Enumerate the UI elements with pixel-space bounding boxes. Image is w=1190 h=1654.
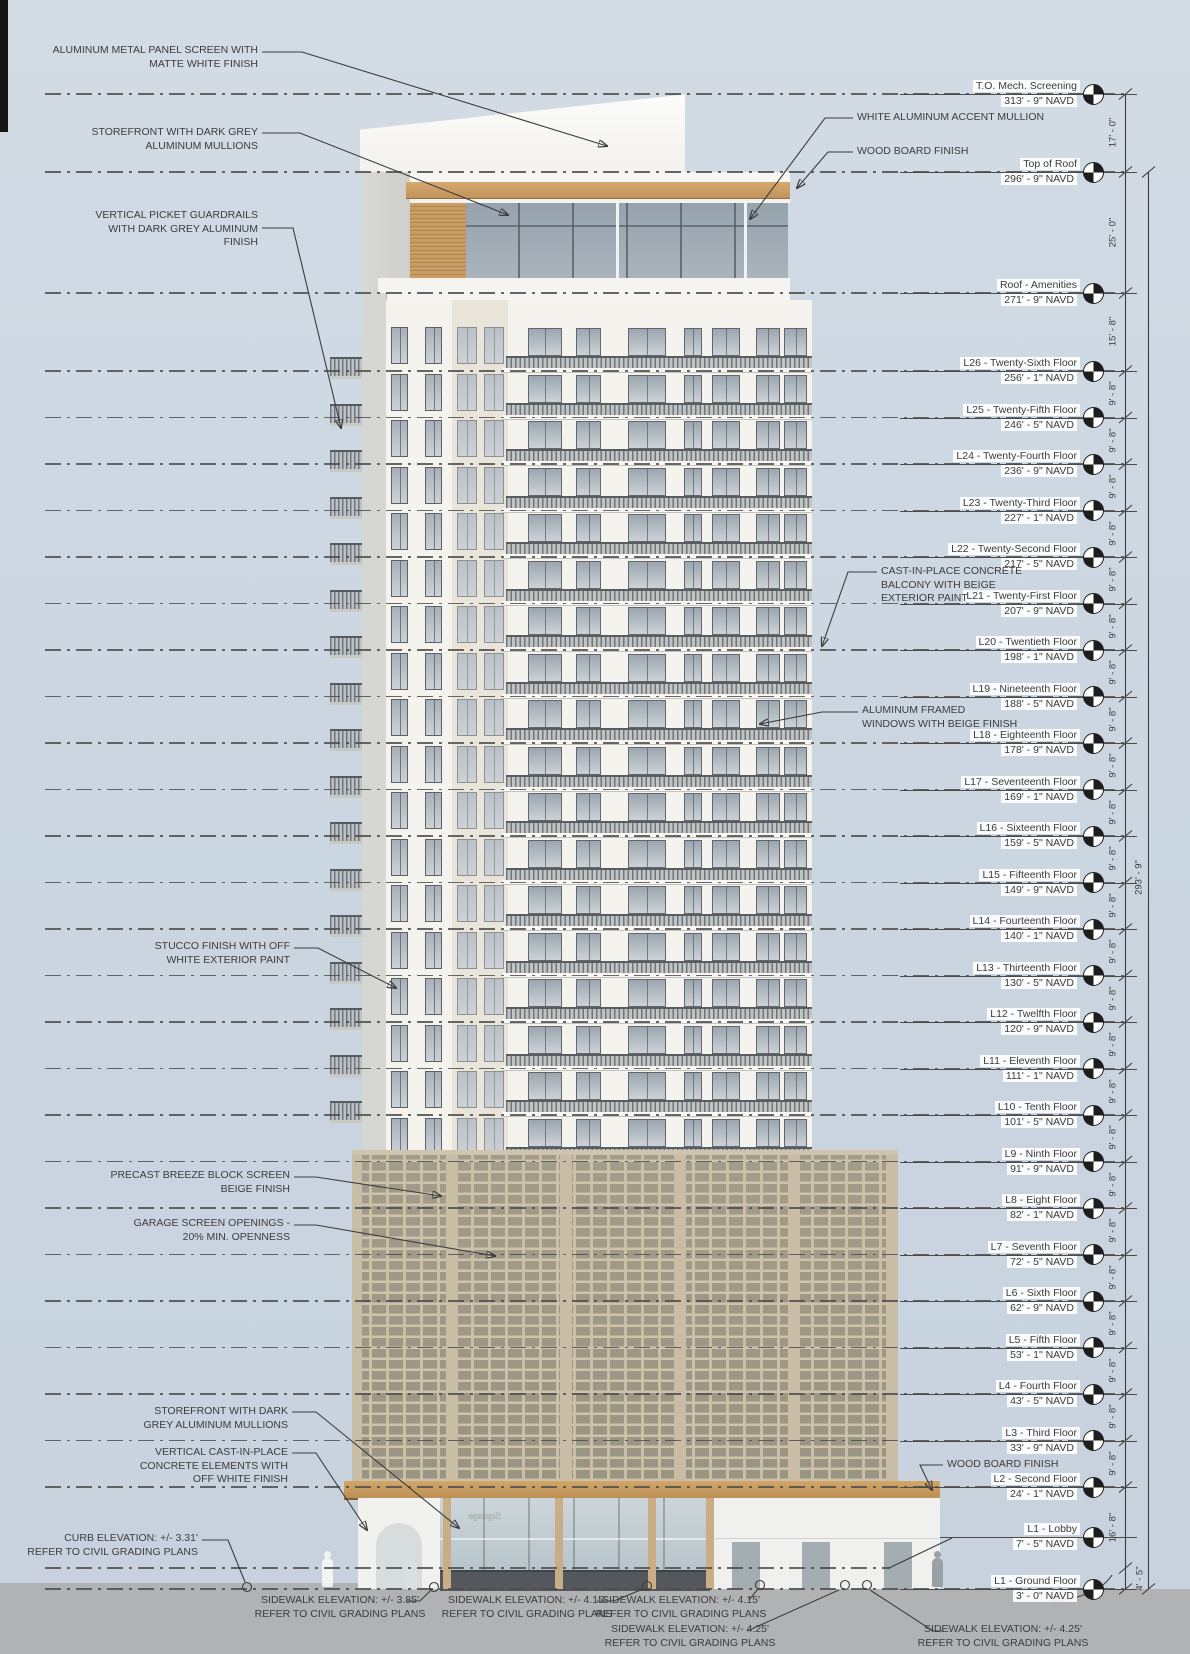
tower-window — [784, 421, 807, 449]
tower-window — [391, 467, 408, 504]
wood-fascia — [406, 182, 790, 199]
tower-window — [628, 933, 666, 961]
tower-window — [528, 654, 562, 682]
window-mullion — [434, 840, 435, 875]
west-balcony — [330, 1101, 362, 1123]
window-mullion — [693, 608, 694, 634]
tower-window — [684, 886, 702, 914]
window-mullion — [545, 422, 546, 448]
window-mullion — [434, 1072, 435, 1107]
level-elevation: 101' - 5" NAVD — [1001, 1116, 1077, 1128]
datum-marker — [1083, 872, 1104, 893]
tower-window — [784, 979, 807, 1007]
window-mullion — [467, 747, 468, 782]
window-mullion — [726, 562, 727, 588]
level-elevation: 149' - 9" NAVD — [1001, 884, 1077, 896]
window-mullion — [768, 748, 769, 774]
level-name: L1 - Lobby — [1024, 1523, 1080, 1535]
level-elevation: 91' - 9" NAVD — [1007, 1163, 1077, 1175]
callout-line: STUCCO FINISH WITH OFF — [0, 940, 290, 954]
window-mullion — [693, 841, 694, 867]
storefront-glass: Signage — [440, 1498, 710, 1589]
podium-top-band — [352, 1150, 898, 1155]
callout-line: WOOD BOARD FINISH — [947, 1458, 1190, 1472]
tower-window — [784, 1026, 807, 1054]
mechanical-screen — [360, 92, 685, 172]
level-name: L17 - Seventeenth Floor — [961, 776, 1080, 788]
tower-window — [484, 513, 504, 550]
tower-window — [391, 653, 408, 690]
window-mullion — [467, 886, 468, 921]
tower-window — [784, 747, 807, 775]
window-mullion — [647, 608, 648, 634]
tower-window — [391, 792, 408, 829]
level-name: L4 - Fourth Floor — [996, 1380, 1080, 1392]
window-mullion — [400, 375, 401, 410]
tower-window — [684, 561, 702, 589]
tower-window — [484, 560, 504, 597]
tower-window — [712, 654, 740, 682]
callout-line: STOREFRONT WITH DARK — [0, 1405, 288, 1419]
tower-window — [628, 747, 666, 775]
callout-accent-mullion: WHITE ALUMINUM ACCENT MULLION — [857, 111, 1157, 125]
callout-line: REFER TO CIVIL GRADING PLANS — [0, 1546, 198, 1560]
tower-window — [628, 1072, 666, 1100]
window-mullion — [400, 933, 401, 968]
callout-line: GARAGE SCREEN OPENINGS - — [0, 1217, 290, 1231]
tower-window — [784, 886, 807, 914]
tower-window — [576, 840, 601, 868]
tower-window — [457, 653, 477, 690]
elevation-drawing: Signage — [0, 0, 1190, 1654]
callout-line: SIDEWALK ELEVATION: +/- 4.25' — [590, 1623, 790, 1637]
tower-window — [391, 374, 408, 411]
tower-window — [784, 840, 807, 868]
tower-window — [425, 792, 442, 829]
window-mullion — [400, 1026, 401, 1061]
window-mullion — [693, 376, 694, 402]
window-mullion — [434, 654, 435, 689]
window-mullion — [434, 1026, 435, 1061]
tower-window — [684, 933, 702, 961]
window-mullion — [494, 700, 495, 735]
tower-window — [457, 839, 477, 876]
window-mullion — [400, 468, 401, 503]
callout-storefront-mullions-bottom: STOREFRONT WITH DARKGREY ALUMINUM MULLIO… — [0, 1405, 288, 1432]
tower-window — [628, 979, 666, 1007]
level-elevation: 120' - 9" NAVD — [1001, 1023, 1077, 1035]
tower-window — [425, 1025, 442, 1062]
tower-window — [425, 420, 442, 457]
tower-window — [756, 561, 780, 589]
level-elevation: 159' - 5" NAVD — [1001, 837, 1077, 849]
door-opening — [732, 1542, 760, 1589]
tower-window — [528, 1072, 562, 1100]
leader-wood-board-top — [797, 152, 853, 188]
window-mullion — [467, 840, 468, 875]
window-mullion — [726, 887, 727, 913]
window-mullion — [693, 329, 694, 355]
level-elevation: 271' - 9" NAVD — [1001, 294, 1077, 306]
window-mullion — [589, 887, 590, 913]
window-mullion — [400, 561, 401, 596]
dim-tick — [1142, 167, 1155, 178]
glass-transom — [440, 1538, 710, 1540]
tower-window — [528, 933, 562, 961]
window-mullion — [434, 979, 435, 1014]
tower-window — [628, 514, 666, 542]
window-mullion — [494, 654, 495, 689]
tower-window — [391, 1118, 408, 1151]
window-mullion — [726, 1120, 727, 1146]
window-mullion — [494, 793, 495, 828]
dim-tick — [1119, 1563, 1132, 1574]
level-name: Roof - Amenities — [997, 279, 1080, 291]
callout-line: PRECAST BREEZE BLOCK SCREEN — [0, 1169, 290, 1183]
datum-marker — [1083, 361, 1104, 382]
datum-marker — [1083, 733, 1104, 754]
tower-window — [684, 468, 702, 496]
tower-window — [391, 606, 408, 643]
podium-pier — [352, 1150, 362, 1481]
window-mullion — [434, 328, 435, 363]
window-mullion — [693, 701, 694, 727]
window-mullion — [589, 376, 590, 402]
tower-window — [457, 1071, 477, 1108]
level-elevation: 227' - 1" NAVD — [1001, 512, 1077, 524]
tower-window — [784, 700, 807, 728]
dim-text: 4' - 5" — [1135, 1536, 1146, 1620]
level-elevation: 256' - 1" NAVD — [1001, 372, 1077, 384]
level-elevation: 53' - 1" NAVD — [1007, 1349, 1077, 1361]
tower-window — [756, 328, 780, 356]
wood-side-panel — [410, 203, 466, 278]
callout-sidewalk-385: SIDEWALK ELEVATION: +/- 3.85'REFER TO CI… — [240, 1594, 440, 1621]
door-opening — [802, 1542, 830, 1589]
tower-window — [576, 979, 601, 1007]
window-mullion — [768, 980, 769, 1006]
tower-window — [457, 932, 477, 969]
window-mullion — [693, 887, 694, 913]
window-mullion — [494, 933, 495, 968]
window-mullion — [768, 608, 769, 634]
window-mullion — [434, 886, 435, 921]
datum-marker — [1083, 162, 1104, 183]
callout-sidewalk-425-a: SIDEWALK ELEVATION: +/- 4.25'REFER TO CI… — [590, 1623, 790, 1650]
window-mullion — [796, 655, 797, 681]
window-mullion — [545, 980, 546, 1006]
west-balcony — [330, 590, 362, 612]
window-mullion — [768, 1120, 769, 1146]
tower-window — [484, 374, 504, 411]
window-mullion — [589, 469, 590, 495]
tower-window — [457, 1025, 477, 1062]
window-mullion — [545, 1073, 546, 1099]
tower-window — [712, 607, 740, 635]
datum-marker — [1083, 919, 1104, 940]
west-balcony — [330, 962, 362, 984]
window-mullion — [647, 980, 648, 1006]
window-mullion — [768, 887, 769, 913]
west-balcony — [330, 636, 362, 658]
level-elevation: 296' - 9" NAVD — [1001, 173, 1077, 185]
tower-window — [391, 1025, 408, 1062]
tower-window — [425, 606, 442, 643]
tower-window — [712, 468, 740, 496]
window-mullion — [647, 748, 648, 774]
tower-window — [756, 700, 780, 728]
datum-marker — [1083, 965, 1104, 986]
window-mullion — [545, 934, 546, 960]
tower-window — [756, 1072, 780, 1100]
window-mullion — [589, 422, 590, 448]
window-mullion — [796, 422, 797, 448]
dim-text: 17' - 0" — [1108, 91, 1119, 175]
window-mullion — [589, 794, 590, 820]
window-mullion — [545, 794, 546, 820]
window-mullion — [647, 1073, 648, 1099]
tower-window — [712, 561, 740, 589]
callout-wood-board-top: WOOD BOARD FINISH — [857, 145, 1157, 159]
tower-window — [576, 328, 601, 356]
ground-floor: Signage — [358, 1498, 940, 1589]
window-mullion — [467, 328, 468, 363]
window-mullion — [494, 1026, 495, 1061]
datum-marker — [1083, 1198, 1104, 1219]
level-elevation: 178' - 9" NAVD — [1001, 744, 1077, 756]
level-elevation: 33' - 9" NAVD — [1007, 1442, 1077, 1454]
tower-window — [425, 1071, 442, 1108]
window-mullion — [726, 469, 727, 495]
callout-line: GREY ALUMINUM MULLIONS — [0, 1419, 288, 1433]
window-mullion — [400, 514, 401, 549]
window-mullion — [589, 748, 590, 774]
tower-window — [484, 1025, 504, 1062]
window-mullion — [467, 979, 468, 1014]
window-mullion — [726, 515, 727, 541]
window-mullion — [796, 887, 797, 913]
podium-pier — [446, 1150, 458, 1481]
window-mullion — [768, 422, 769, 448]
tower-window — [628, 793, 666, 821]
window-mullion — [400, 654, 401, 689]
window-mullion — [545, 841, 546, 867]
window-mullion — [647, 1120, 648, 1146]
tower-window — [484, 792, 504, 829]
tower-window — [457, 978, 477, 1015]
tower-window — [528, 747, 562, 775]
ground-column — [555, 1498, 563, 1589]
window-mullion — [434, 375, 435, 410]
window-mullion — [589, 1120, 590, 1146]
tower-window — [628, 700, 666, 728]
level-name: L9 - Ninth Floor — [1002, 1148, 1080, 1160]
callout-line: WHITE ALUMINUM ACCENT MULLION — [857, 111, 1157, 125]
callout-storefront-mullions-top: STOREFRONT WITH DARK GREYALUMINUM MULLIO… — [0, 126, 258, 153]
callout-line: WOOD BOARD FINISH — [857, 145, 1157, 159]
window-mullion — [494, 328, 495, 363]
tower-window — [425, 932, 442, 969]
tower-window — [425, 560, 442, 597]
window-mullion — [693, 748, 694, 774]
level-name: L1 - Ground Floor — [991, 1575, 1080, 1587]
tower-window — [712, 793, 740, 821]
podium-pier — [674, 1150, 686, 1481]
tower-window — [784, 514, 807, 542]
window-mullion — [467, 1119, 468, 1151]
level-elevation: 3' - 0" NAVD — [1013, 1590, 1077, 1602]
callout-concrete-balcony: CAST-IN-PLACE CONCRETEBALCONY WITH BEIGE… — [881, 565, 1181, 606]
tower-window — [425, 885, 442, 922]
level-elevation: 130' - 5" NAVD — [1001, 977, 1077, 989]
tower-window — [628, 607, 666, 635]
tower-window — [756, 933, 780, 961]
level-elevation: 111' - 1" NAVD — [1003, 1070, 1077, 1082]
tower-window — [457, 327, 477, 364]
tower-window — [712, 886, 740, 914]
tower-window — [756, 654, 780, 682]
ground-column — [706, 1498, 714, 1589]
level-elevation: 7' - 5" NAVD — [1013, 1538, 1077, 1550]
tower-window — [391, 1071, 408, 1108]
glass-signage-text: Signage — [468, 1510, 501, 1524]
tower-window — [528, 840, 562, 868]
tower-window — [391, 839, 408, 876]
window-mullion — [693, 469, 694, 495]
window-mullion — [545, 376, 546, 402]
window-mullion — [494, 375, 495, 410]
window-mullion — [589, 1027, 590, 1053]
callout-line: WITH DARK GREY ALUMINUM — [0, 223, 258, 237]
tower-window — [391, 513, 408, 550]
window-mullion — [768, 329, 769, 355]
dim-text: 16' - 8" — [1108, 1485, 1119, 1569]
lobby-arch-wall — [358, 1498, 440, 1589]
tower-window — [684, 747, 702, 775]
callout-line: REFER TO CIVIL GRADING PLANS — [903, 1637, 1103, 1651]
white-accent-mullion — [616, 203, 619, 278]
window-mullion — [726, 1027, 727, 1053]
tower-window — [784, 654, 807, 682]
tower-window — [484, 746, 504, 783]
tower-window — [756, 375, 780, 403]
tower-window — [425, 746, 442, 783]
tower-window — [484, 1118, 504, 1151]
datum-marker — [1083, 1477, 1104, 1498]
amenity-parapet-top — [410, 172, 790, 182]
roof-amenities-parapet — [378, 278, 790, 300]
tower-window — [576, 1072, 601, 1100]
window-mullion — [400, 747, 401, 782]
tower-window — [484, 1071, 504, 1108]
tower-window — [784, 1072, 807, 1100]
tower-window — [457, 792, 477, 829]
west-balcony — [330, 1008, 362, 1030]
tower-window — [576, 654, 601, 682]
window-mullion — [434, 514, 435, 549]
window-mullion — [796, 1120, 797, 1146]
level-name: L8 - Eight Floor — [1002, 1194, 1080, 1206]
datum-marker — [1083, 454, 1104, 475]
window-mullion — [494, 886, 495, 921]
tower-window — [712, 1072, 740, 1100]
window-mullion — [693, 655, 694, 681]
callout-line: WHITE EXTERIOR PAINT — [0, 954, 290, 968]
window-mullion — [494, 468, 495, 503]
window-mullion — [647, 841, 648, 867]
window-mullion — [589, 329, 590, 355]
tower-window — [628, 468, 666, 496]
tower-window — [425, 978, 442, 1015]
level-name: L10 - Tenth Floor — [995, 1101, 1080, 1113]
tower-window — [756, 514, 780, 542]
tower-window — [576, 1119, 601, 1147]
window-mullion — [647, 469, 648, 495]
window-mullion — [589, 515, 590, 541]
window-mullion — [796, 794, 797, 820]
tower-window — [484, 327, 504, 364]
window-mullion — [647, 329, 648, 355]
callout-line: REFER TO CIVIL GRADING PLANS — [590, 1637, 790, 1651]
window-mullion — [768, 1027, 769, 1053]
window-mullion — [467, 933, 468, 968]
callout-line: WINDOWS WITH BEIGE FINISH — [862, 718, 1162, 732]
callout-line: ALUMINUM METAL PANEL SCREEN WITH — [0, 44, 258, 58]
tower-window — [628, 840, 666, 868]
level-name: L5 - Fifth Floor — [1006, 1334, 1080, 1346]
west-balcony — [330, 683, 362, 705]
callout-picket-guardrails: VERTICAL PICKET GUARDRAILSWITH DARK GREY… — [0, 209, 258, 250]
window-mullion — [434, 468, 435, 503]
datum-marker — [1083, 1527, 1104, 1548]
tower-window — [528, 793, 562, 821]
tower-window — [457, 513, 477, 550]
datum-marker — [1083, 1430, 1104, 1451]
leader-curb — [202, 1540, 245, 1582]
window-mullion — [796, 1073, 797, 1099]
datum-marker — [1083, 1012, 1104, 1033]
tower-window — [484, 932, 504, 969]
window-mullion — [545, 329, 546, 355]
tower-window — [457, 699, 477, 736]
window-mullion — [494, 1072, 495, 1107]
window-mullion — [768, 469, 769, 495]
tower-window — [457, 1118, 477, 1151]
tower-window — [484, 885, 504, 922]
window-mullion — [796, 608, 797, 634]
level-elevation: 313' - 9" NAVD — [1001, 95, 1077, 107]
window-mullion — [693, 1027, 694, 1053]
tower-window — [576, 933, 601, 961]
tower-window — [391, 978, 408, 1015]
tower-window — [712, 375, 740, 403]
amenity-glazing — [466, 203, 788, 278]
window-mullion — [494, 747, 495, 782]
tower-window — [457, 374, 477, 411]
callout-breeze-block-screen: PRECAST BREEZE BLOCK SCREENBEIGE FINISH — [0, 1169, 290, 1196]
window-mullion — [400, 979, 401, 1014]
callout-line: SIDEWALK ELEVATION: +/- 3.85' — [240, 1594, 440, 1608]
level-name: L16 - Sixteenth Floor — [977, 822, 1080, 834]
datum-marker — [1083, 1151, 1104, 1172]
tower-window — [628, 328, 666, 356]
tower-window — [391, 699, 408, 736]
datum-marker — [1083, 1337, 1104, 1358]
window-mullion — [494, 840, 495, 875]
tower-window — [576, 375, 601, 403]
tower-window — [712, 747, 740, 775]
tower-window — [425, 374, 442, 411]
